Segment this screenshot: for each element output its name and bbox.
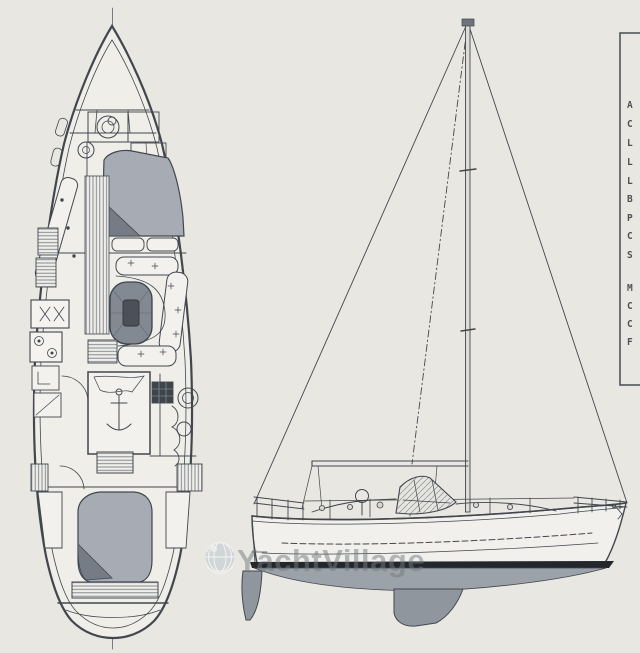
- spec-letter: L: [627, 176, 633, 187]
- galley-sink: [31, 300, 69, 328]
- companionway-steps: [97, 452, 133, 473]
- spec-letter: F: [627, 337, 633, 348]
- steering-wheel: [356, 490, 369, 516]
- spec-letter: L: [627, 138, 633, 149]
- spreader: [461, 329, 475, 331]
- mainsail-leech-line: [412, 28, 467, 464]
- yacht-drawing: A C L L L B P C S M C C F YachtVillage: [0, 0, 640, 653]
- spec-letter: C: [627, 119, 633, 130]
- spec-letter: M: [627, 283, 633, 294]
- deck-plan-view: [30, 8, 202, 649]
- locker-hatched: [38, 228, 58, 255]
- locker-striped: [31, 464, 48, 491]
- cabin-sole: [85, 176, 109, 334]
- side-locker: [38, 492, 62, 548]
- locker-striped: [177, 464, 202, 491]
- spec-letter: B: [627, 194, 633, 205]
- pillow: [112, 238, 144, 251]
- masthead: [462, 19, 474, 26]
- spec-letter: C: [627, 301, 633, 312]
- berth-foot-band: [72, 582, 158, 598]
- spec-letter: C: [627, 231, 633, 242]
- specs-panel: A C L L L B P C S M C C F: [620, 33, 640, 385]
- spec-letter: C: [627, 319, 633, 330]
- specs-panel-border: [620, 33, 640, 385]
- spec-letter: A: [627, 100, 633, 111]
- backstay: [254, 26, 466, 504]
- spec-letter: L: [627, 157, 633, 168]
- cabin-trunk: [456, 502, 556, 511]
- scanned-yacht-brochure: A C L L L B P C S M C C F YachtVillage: [0, 0, 640, 653]
- spec-letter: P: [627, 213, 633, 224]
- watermark-text: YachtVillage: [237, 543, 425, 578]
- locker-hatched: [36, 258, 56, 287]
- keel: [394, 589, 463, 626]
- cabinet-hatched: [88, 340, 117, 363]
- spreader: [460, 169, 476, 171]
- mast: [460, 19, 476, 512]
- globe-icon: [206, 543, 235, 574]
- forestay: [469, 26, 627, 503]
- watermark: YachtVillage: [206, 543, 426, 579]
- spec-letter: S: [627, 250, 633, 261]
- dodger-sprayhood: [396, 476, 456, 514]
- pillow: [147, 238, 178, 251]
- side-locker: [166, 492, 190, 548]
- salon-table: [110, 282, 152, 344]
- rudder: [242, 571, 262, 620]
- nav-chart-table: [152, 382, 173, 403]
- profile-view: [242, 19, 627, 626]
- galley-stove: [30, 332, 62, 362]
